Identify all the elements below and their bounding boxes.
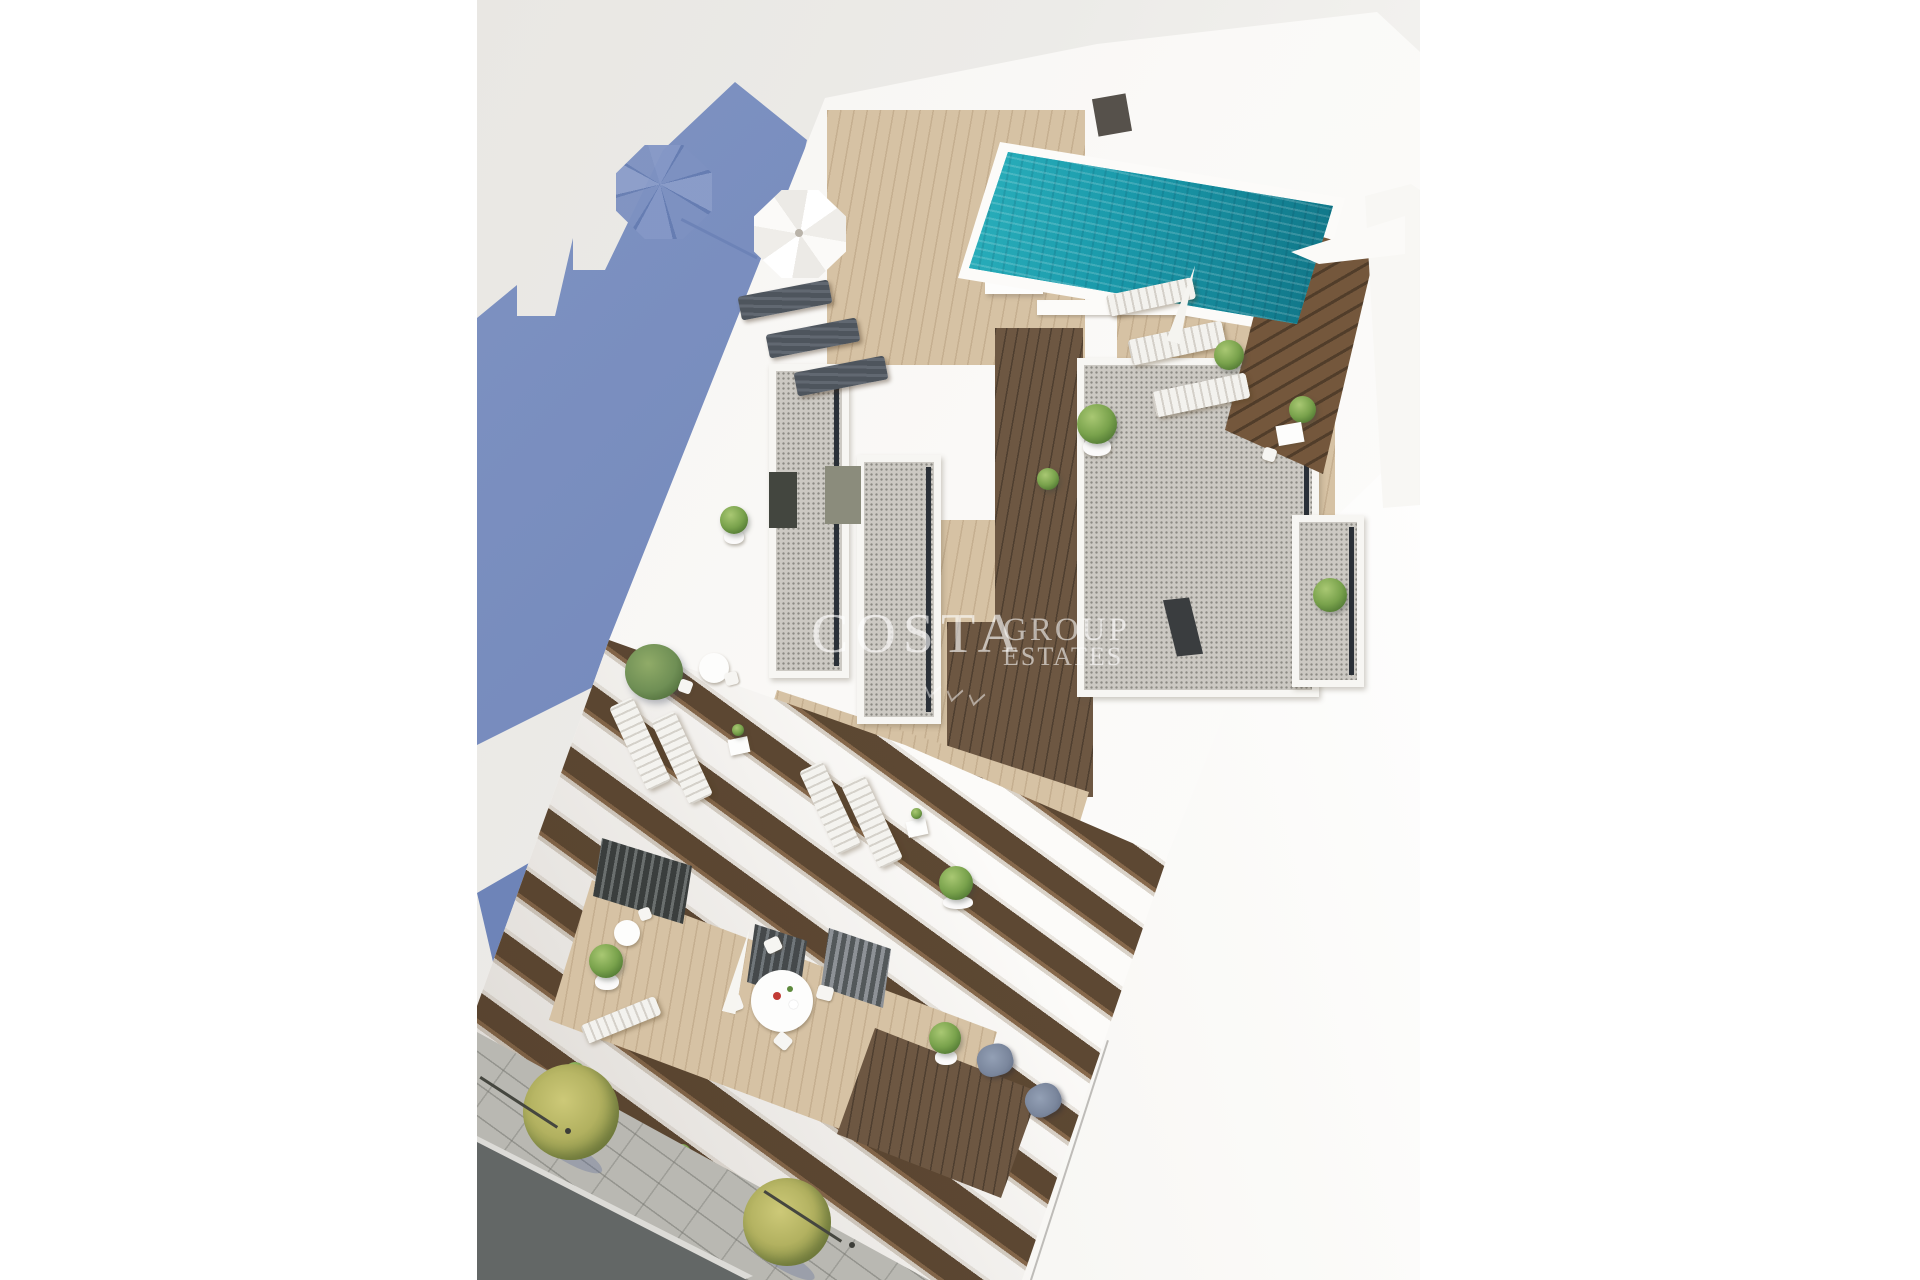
table-plate-white bbox=[789, 1000, 798, 1009]
potted-plant bbox=[1313, 578, 1347, 612]
parasol-center-hub bbox=[795, 229, 803, 237]
potted-plant bbox=[1289, 396, 1316, 423]
potted-plant bbox=[1037, 468, 1059, 490]
umbrella-shadow bbox=[616, 145, 712, 239]
watermark-laurel-mark bbox=[969, 685, 986, 706]
street-tree bbox=[743, 1178, 831, 1266]
roof-access-door-dark bbox=[769, 472, 797, 528]
potted-plant bbox=[1077, 404, 1117, 444]
watermark-laurel-mark bbox=[925, 677, 942, 698]
potted-plant bbox=[911, 808, 922, 819]
watermark-laurel-mark bbox=[947, 681, 964, 702]
street-lamp-head bbox=[849, 1242, 855, 1248]
balcony-table-small bbox=[614, 920, 640, 946]
roof-access-door-olive bbox=[825, 466, 861, 524]
watermark: COSTA GROUP ESTATES bbox=[777, 592, 1197, 722]
balcony-plant bbox=[939, 866, 973, 900]
table-plate-red bbox=[773, 992, 781, 1000]
table-plate-green bbox=[787, 986, 793, 992]
screenshot-canvas: Aerial 3D architectural rendering of a w… bbox=[0, 0, 1920, 1280]
potted-plant bbox=[1214, 340, 1244, 370]
potted-plant bbox=[732, 724, 744, 736]
street-lamp-head bbox=[565, 1128, 571, 1134]
large-edge-plant bbox=[625, 644, 683, 700]
render-photo: COSTA GROUP ESTATES bbox=[477, 0, 1420, 1280]
watermark-tertiary-text: ESTATES bbox=[1003, 644, 1123, 670]
dining-table-round bbox=[751, 970, 813, 1032]
potted-plant bbox=[720, 506, 748, 534]
watermark-primary-text: COSTA bbox=[811, 606, 1025, 662]
gravel-roof-seam bbox=[1349, 527, 1354, 675]
balcony-plant bbox=[929, 1022, 961, 1054]
balcony-plant bbox=[589, 944, 623, 978]
roof-top-opening bbox=[1092, 93, 1132, 136]
